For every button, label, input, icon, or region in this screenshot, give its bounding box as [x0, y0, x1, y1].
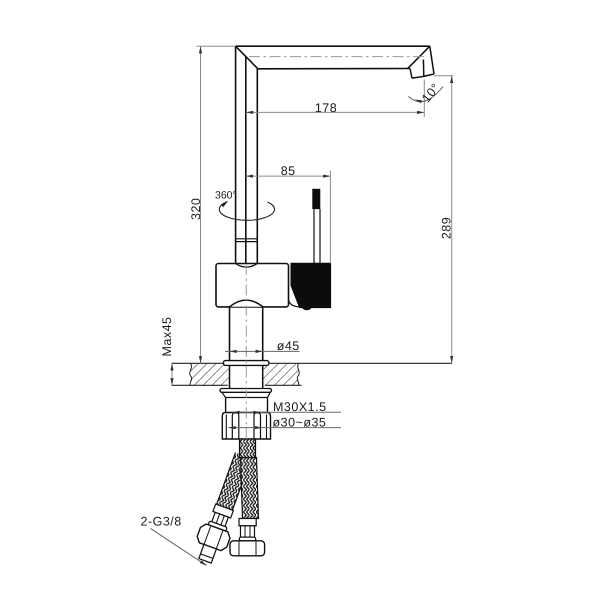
svg-text:ø45: ø45: [277, 339, 300, 353]
svg-text:ø30~ø35: ø30~ø35: [273, 415, 327, 429]
svg-text:289: 289: [440, 217, 454, 239]
svg-text:360°: 360°: [215, 189, 237, 201]
svg-text:320: 320: [189, 198, 203, 220]
svg-text:Max45: Max45: [160, 316, 174, 356]
svg-text:85: 85: [281, 164, 296, 178]
svg-text:M30X1.5: M30X1.5: [273, 400, 327, 414]
svg-text:2-G3/8: 2-G3/8: [141, 514, 182, 528]
svg-text:178: 178: [315, 101, 337, 115]
